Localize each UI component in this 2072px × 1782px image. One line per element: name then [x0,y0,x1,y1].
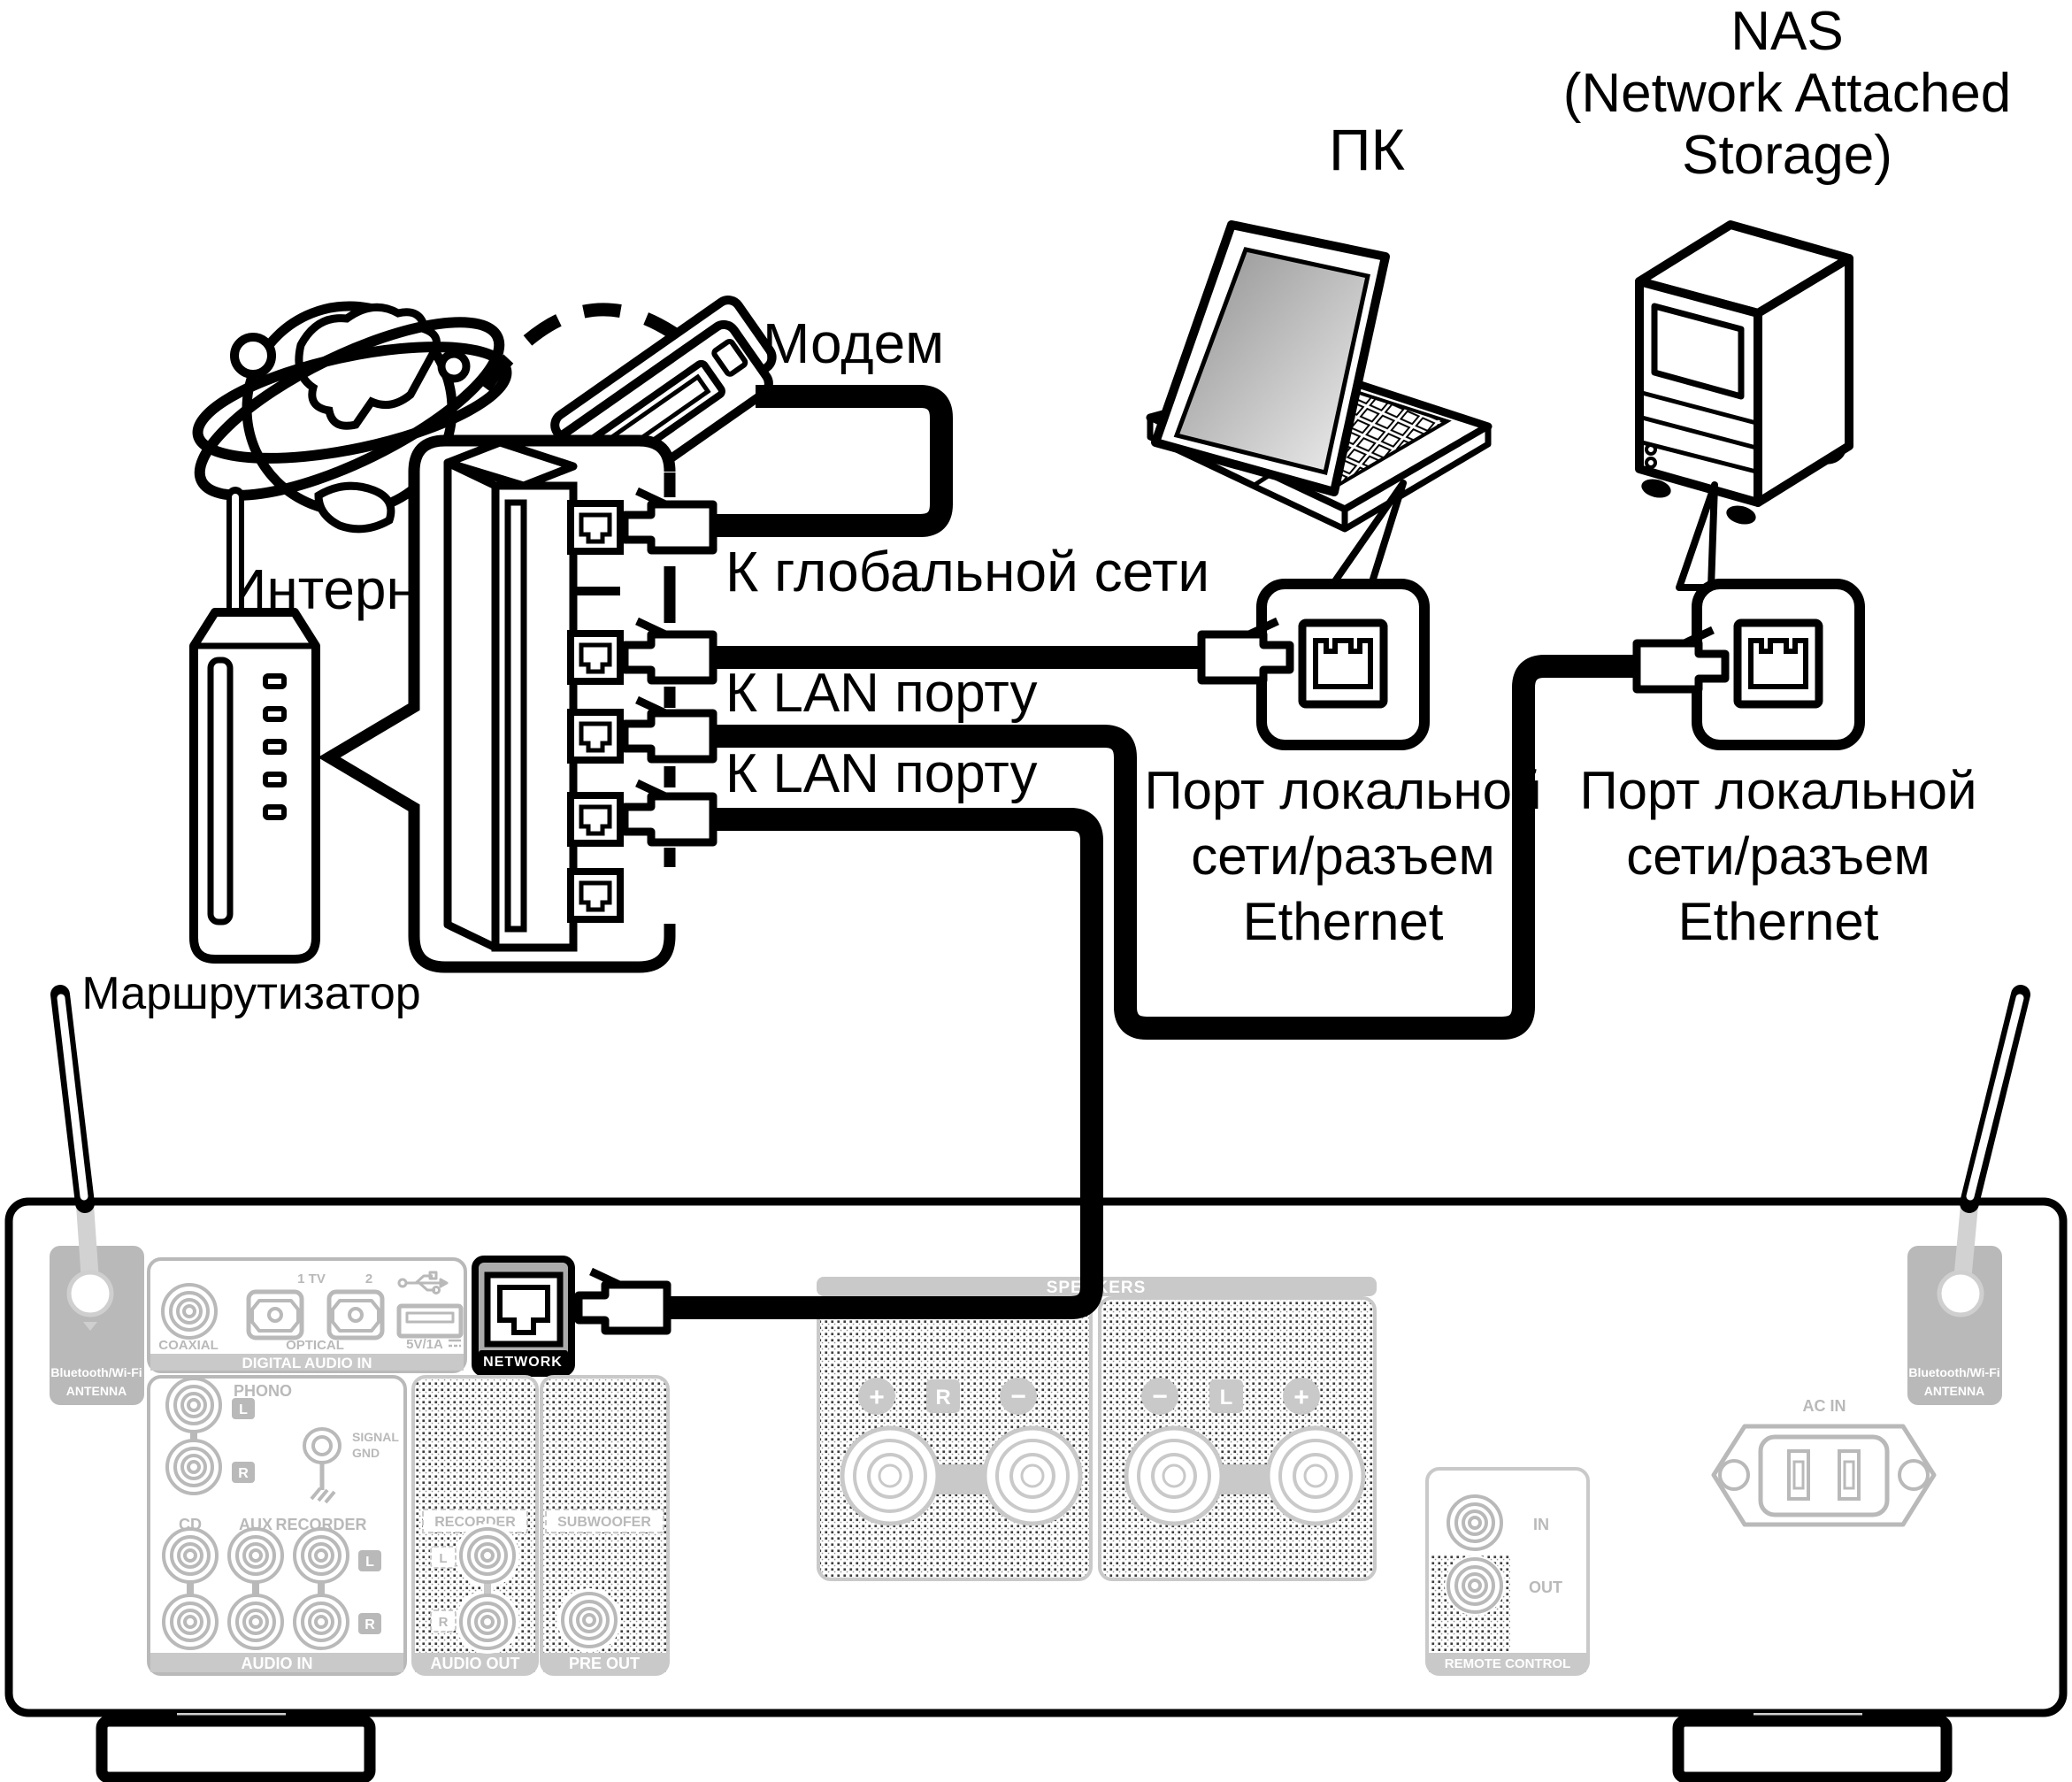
svg-text:−: − [1152,1382,1168,1411]
svg-text:ANTENNA: ANTENNA [1924,1384,1984,1398]
nas-icon [1639,225,1849,527]
router-port-lan1 [571,634,620,681]
coaxial-jack: COAXIAL [158,1285,219,1353]
svg-text:SIGNAL: SIGNAL [352,1430,399,1444]
svg-text:R: R [935,1386,950,1409]
svg-text:R: R [439,1615,449,1630]
digital-audio-in-section: COAXIAL 1 TV 2 OPTICAL 5V/1A [149,1259,465,1371]
svg-text:R: R [238,1466,249,1481]
svg-text:OUT: OUT [1529,1578,1562,1596]
router-port-lan4 [571,872,620,919]
svg-text:COAXIAL: COAXIAL [158,1338,219,1353]
svg-text:AUDIO OUT: AUDIO OUT [431,1655,520,1672]
router-label: Маршрутизатор [81,968,420,1019]
svg-text:5V/1A: 5V/1A [406,1337,443,1352]
pc-icon [1150,225,1488,529]
svg-text:SUBWOOFER: SUBWOOFER [557,1515,651,1530]
router-port-lan3 [571,795,620,843]
svg-text:2: 2 [365,1271,372,1287]
antenna-right-rod [1969,995,2021,1203]
svg-text:PRE OUT: PRE OUT [569,1655,640,1672]
ethernet-port-label-nas: Порт локальной сети/разъем Ethernet [1580,761,1977,951]
svg-text:REMOTE CONTROL: REMOTE CONTROL [1445,1656,1571,1671]
svg-text:AC IN: AC IN [1803,1397,1846,1415]
nas-label: NAS (Network Attached Storage) [1563,1,2012,186]
svg-text:сети/разъем: сети/разъем [1191,826,1494,886]
amp-feet [102,1713,1946,1782]
svg-text:Порт локальной: Порт локальной [1145,761,1542,820]
lan-label-1: К LAN порту [725,663,1037,724]
phono-r-jack [167,1440,220,1494]
svg-text:L: L [439,1551,447,1566]
svg-text:(Network Attached: (Network Attached [1563,63,2012,124]
svg-text:R: R [365,1617,375,1632]
svg-text:GND: GND [352,1446,380,1460]
svg-text:1 TV: 1 TV [297,1271,326,1287]
modem-label: Модем [763,311,944,375]
svg-text:PHONO: PHONO [234,1382,292,1400]
router-port-lan2 [571,712,620,760]
svg-text:Bluetooth/Wi-Fi: Bluetooth/Wi-Fi [1908,1365,1999,1379]
svg-text:L: L [239,1402,248,1417]
svg-text:−: − [1010,1382,1026,1411]
svg-text:сети/разъем: сети/разъем [1626,826,1930,886]
audio-in-section: PHONO L R SIGNAL GND CD AUX RECORDER L R… [149,1377,405,1674]
ethernet-jack-icon-pc [1302,623,1384,704]
svg-text:Bluetooth/Wi-Fi: Bluetooth/Wi-Fi [50,1365,142,1379]
pc-label: ПК [1329,117,1405,182]
lan-label-2: К LAN порту [725,743,1037,804]
svg-text:Порт локальной: Порт локальной [1580,761,1977,820]
wan-label: К глобальной сети [725,540,1209,603]
svg-text:+: + [869,1383,885,1412]
router-port-wan [571,503,620,551]
cable-modem-wan [713,396,941,526]
svg-text:Ethernet: Ethernet [1678,892,1879,951]
ethernet-callout-nas [1679,485,1860,745]
remote-control-section: IN OUT REMOTE CONTROL [1427,1469,1588,1674]
ethernet-port-label-pc: Порт локальной сети/разъем Ethernet [1145,761,1542,951]
network-connection-diagram: Интернет Модем Маршрутизатор ПК [0,0,2072,1782]
svg-text:Ethernet: Ethernet [1243,892,1444,951]
amplifier-rear-panel: Bluetooth/Wi-Fi ANTENNA Bluetooth/Wi-Fi … [9,1202,2063,1782]
svg-text:DIGITAL AUDIO IN: DIGITAL AUDIO IN [242,1355,372,1371]
audio-out-section: RECORDER L R AUDIO OUT [413,1377,537,1674]
svg-text:NAS: NAS [1731,1,1843,62]
ethernet-jack-icon-nas [1738,623,1819,704]
phono-l-jack [167,1379,220,1432]
svg-text:NETWORK: NETWORK [483,1355,563,1370]
network-port: NETWORK [475,1259,572,1373]
svg-text:ANTENNA: ANTENNA [66,1384,127,1398]
antenna-left-rod [60,995,85,1203]
pre-out-section: SUBWOOFER PRE OUT [541,1377,668,1674]
svg-text:+: + [1293,1383,1309,1412]
svg-text:AUDIO IN: AUDIO IN [242,1655,313,1672]
svg-text:OPTICAL: OPTICAL [286,1338,344,1353]
svg-text:L: L [1220,1386,1233,1409]
svg-text:Storage): Storage) [1682,125,1892,186]
diagram-svg: Интернет Модем Маршрутизатор ПК [0,0,2072,1782]
svg-text:L: L [365,1555,374,1570]
svg-text:IN: IN [1533,1516,1549,1533]
